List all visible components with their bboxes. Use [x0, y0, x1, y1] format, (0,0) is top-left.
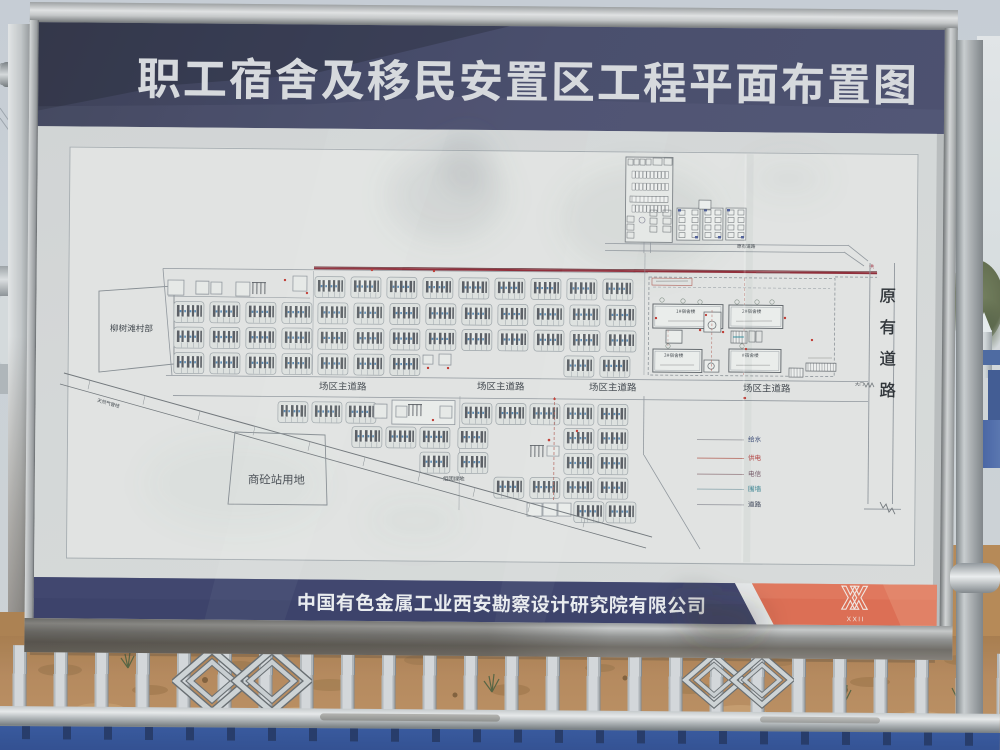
svg-text:XXII: XXII	[847, 616, 865, 623]
